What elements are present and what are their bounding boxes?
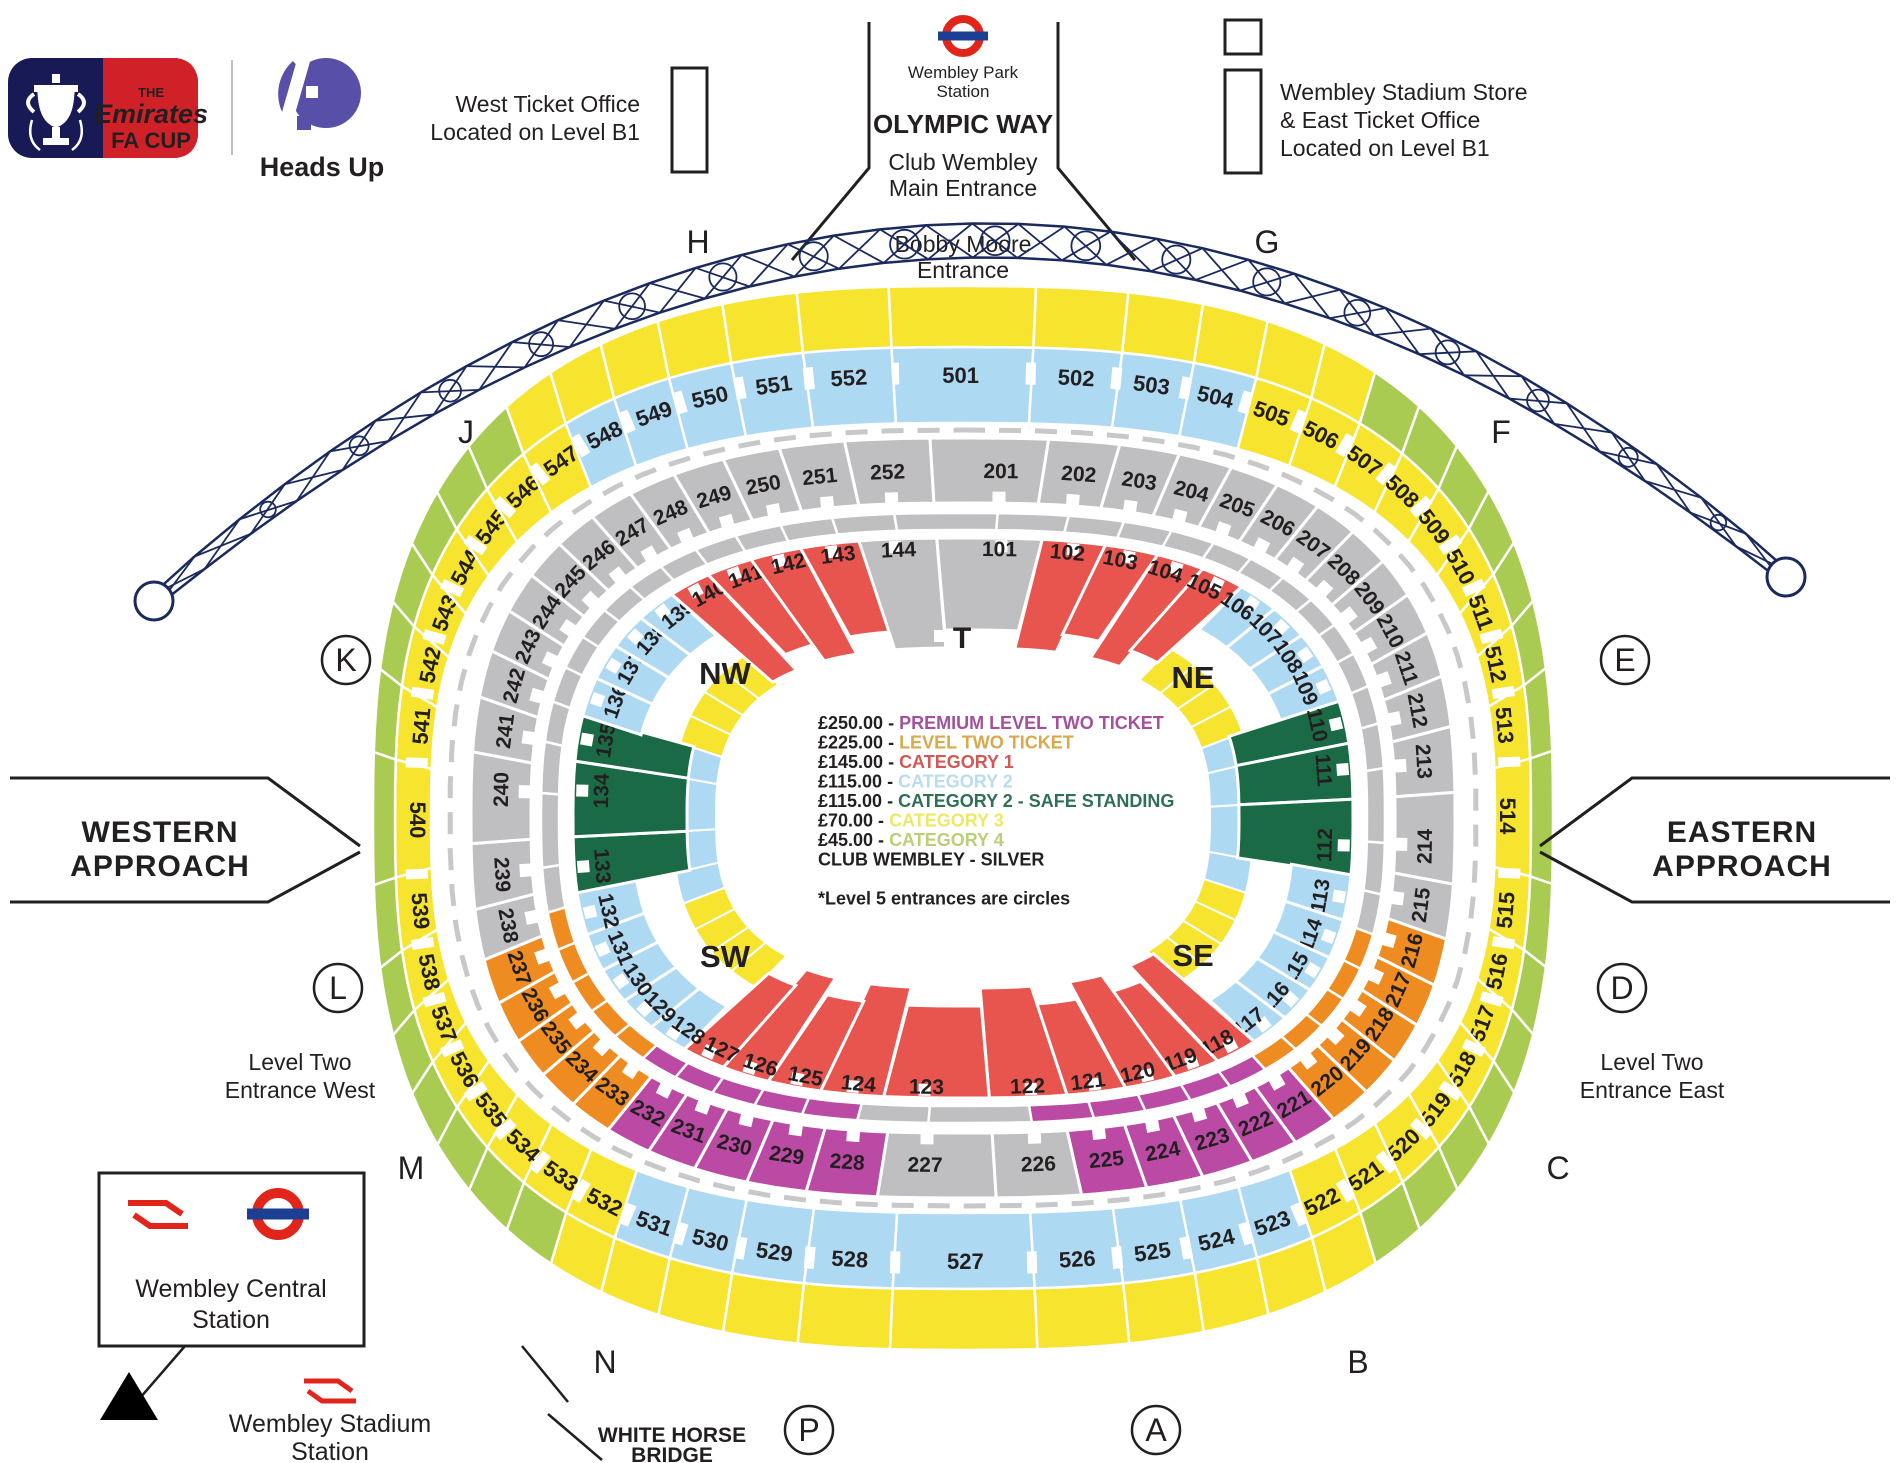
- compass-sw: SW: [700, 939, 751, 974]
- section-label-215: 215: [1408, 886, 1435, 924]
- section-label-213: 213: [1411, 743, 1436, 779]
- section-label-102: 102: [1049, 540, 1086, 566]
- gate-letter: G: [1255, 224, 1280, 260]
- eastern-approach-line1: EASTERN: [1667, 816, 1817, 849]
- section-label-228: 228: [829, 1150, 866, 1175]
- gate-H: H: [686, 224, 709, 260]
- section-label-124: 124: [840, 1071, 877, 1097]
- gate-letter: B: [1347, 1344, 1368, 1380]
- section-514: 514: [1494, 751, 1553, 884]
- section-label-133: 133: [589, 848, 614, 885]
- section-label-112: 112: [1313, 828, 1337, 862]
- eastern-approach: EASTERN APPROACH: [1540, 778, 1890, 902]
- section-540: 540: [373, 752, 432, 885]
- legend-row: £70.00 - CATEGORY 3: [818, 811, 1004, 831]
- national-rail-icon: [304, 1381, 356, 1401]
- section-552: 552: [797, 287, 896, 428]
- section-502: 502: [1026, 287, 1129, 428]
- stadium-station-line2: Station: [291, 1438, 369, 1463]
- section-label-239: 239: [489, 856, 514, 892]
- olympic-way-label: OLYMPIC WAY: [873, 109, 1053, 139]
- fa-cup-logo: THE Emirates FA CUP: [8, 58, 208, 158]
- gate-C: C: [1546, 1150, 1569, 1186]
- gate-letter: E: [1614, 642, 1635, 678]
- entrance-funnel-left-line: [792, 22, 869, 260]
- store-line1: Wembley Stadium Store: [1280, 79, 1528, 105]
- gate-letter: N: [593, 1344, 616, 1380]
- section-label-101: 101: [982, 538, 1018, 561]
- section-label-513: 513: [1490, 706, 1518, 745]
- section-label-121: 121: [1069, 1068, 1107, 1095]
- gate-letter: H: [686, 224, 709, 260]
- store-rect-icon: [1225, 70, 1261, 173]
- gate-letter: M: [398, 1150, 425, 1186]
- bobby-moore-line2: Entrance: [917, 257, 1009, 283]
- legend-row: £225.00 - LEVEL TWO TICKET: [818, 733, 1074, 753]
- gate-letter: K: [335, 642, 356, 678]
- section-501: 501: [889, 286, 1037, 424]
- gate-letter: L: [329, 970, 347, 1006]
- section-label-225: 225: [1088, 1147, 1126, 1174]
- arch-end-west-icon: [135, 582, 173, 620]
- wembley-central-station: Wembley Central Station: [99, 1173, 364, 1346]
- price-legend: £250.00 - PREMIUM LEVEL TWO TICKET£225.0…: [818, 713, 1174, 909]
- store-square-icon: [1225, 20, 1261, 54]
- gate-letter: P: [798, 1412, 819, 1448]
- west-ticket-line2: Located on Level B1: [430, 119, 640, 145]
- fa-cup-emirates: Emirates: [94, 99, 208, 129]
- eastern-approach-line2: APPROACH: [1652, 850, 1832, 883]
- section-label-514: 514: [1495, 798, 1520, 835]
- section-label-251: 251: [801, 464, 839, 491]
- western-approach-line2: APPROACH: [70, 850, 250, 883]
- section-label-214: 214: [1414, 828, 1438, 864]
- station-pointer-line: [140, 1346, 185, 1398]
- club-wembley-line1: Club Wembley: [888, 149, 1038, 175]
- section-label-552: 552: [830, 364, 868, 391]
- fa-cup-the: THE: [138, 85, 164, 100]
- west-ticket-office-icon: [672, 68, 707, 172]
- gate-letter: F: [1491, 414, 1511, 450]
- section-label-527: 527: [947, 1249, 984, 1274]
- bridge-line-2: [548, 1414, 602, 1460]
- gate-L: L: [314, 964, 362, 1012]
- compass-se: SE: [1172, 938, 1213, 973]
- section-label-551: 551: [754, 370, 794, 400]
- wembley-stadium-station: Wembley Stadium Station: [229, 1381, 431, 1463]
- gate-E: E: [1601, 636, 1649, 684]
- legend-row: £250.00 - PREMIUM LEVEL TWO TICKET: [818, 713, 1164, 733]
- central-station-line1: Wembley Central: [135, 1275, 326, 1303]
- compass-nw: NW: [699, 656, 751, 691]
- legend-note: *Level 5 entrances are circles: [818, 889, 1070, 909]
- entrance-funnel-right-line: [1058, 22, 1135, 260]
- gate-F: F: [1491, 414, 1511, 450]
- western-approach-line1: WESTERN: [82, 816, 239, 849]
- section-label-201: 201: [983, 460, 1019, 483]
- central-station-line2: Station: [192, 1306, 270, 1334]
- section-label-241: 241: [492, 712, 519, 750]
- legend-row: £45.00 - CATEGORY 4: [818, 830, 1004, 850]
- gate-J: J: [458, 414, 474, 450]
- section-527: 527: [890, 1213, 1038, 1351]
- section-label-525: 525: [1132, 1237, 1172, 1267]
- gate-K: K: [322, 636, 370, 684]
- legend-club-wembley: CLUB WEMBLEY - SILVER: [818, 850, 1044, 870]
- section-label-515: 515: [1492, 891, 1520, 930]
- gate-N: N: [593, 1344, 616, 1380]
- west-ticket-office: West Ticket Office Located on Level B1: [430, 68, 707, 172]
- underground-roundel-icon: [938, 19, 988, 53]
- gate-letter: J: [458, 414, 474, 450]
- gate-letter: D: [1610, 970, 1633, 1006]
- section-label-503: 503: [1132, 370, 1172, 400]
- bridge-line-1: [522, 1346, 568, 1402]
- section-528: 528: [798, 1208, 901, 1349]
- section-label-502: 502: [1057, 364, 1095, 391]
- section-label-134: 134: [590, 773, 614, 809]
- gate-letter: A: [1145, 1412, 1167, 1448]
- arch-end-east-icon: [1767, 558, 1805, 596]
- gate-M: M: [398, 1150, 425, 1186]
- store-line2: & East Ticket Office: [1280, 107, 1480, 133]
- tunnel-label: T: [953, 622, 971, 655]
- gate-A: A: [1132, 1406, 1180, 1454]
- heads-up-label: Heads Up: [260, 152, 385, 182]
- western-approach: WESTERN APPROACH: [10, 778, 360, 902]
- gate-D: D: [1598, 964, 1646, 1012]
- section-label-528: 528: [831, 1246, 869, 1273]
- entrance-west-line2: Entrance West: [225, 1077, 376, 1103]
- wembley-park-line2: Station: [937, 82, 990, 101]
- entrance-east-line2: Entrance East: [1580, 1077, 1725, 1103]
- compass-ne: NE: [1171, 660, 1214, 695]
- section-label-227: 227: [907, 1154, 942, 1177]
- section-label-541: 541: [407, 707, 435, 746]
- section-label-540: 540: [405, 802, 430, 839]
- section-label-252: 252: [870, 460, 906, 484]
- section-label-123: 123: [909, 1076, 944, 1099]
- white-horse-bridge: WHITE HORSE BRIDGE: [522, 1346, 746, 1463]
- store-line3: Located on Level B1: [1280, 135, 1490, 161]
- section-526: 526: [1030, 1208, 1129, 1349]
- legend-row: £145.00 - CATEGORY 1: [818, 752, 1014, 772]
- entrance-west-line1: Level Two: [248, 1049, 351, 1075]
- gate-letter: C: [1546, 1150, 1569, 1186]
- section-label-144: 144: [881, 538, 917, 562]
- section-label-526: 526: [1058, 1246, 1096, 1273]
- section-label-111: 111: [1311, 753, 1336, 788]
- section-label-240: 240: [490, 772, 514, 807]
- gate-G: G: [1255, 224, 1280, 260]
- map-triangle-icon: [100, 1372, 158, 1420]
- section-label-226: 226: [1021, 1152, 1057, 1176]
- bridge-label-line2: BRIDGE: [631, 1444, 713, 1463]
- section-label-122: 122: [1010, 1074, 1046, 1098]
- section-label-143: 143: [819, 542, 857, 569]
- gate-B: B: [1347, 1344, 1368, 1380]
- section-label-501: 501: [942, 363, 979, 388]
- club-wembley-line2: Main Entrance: [889, 175, 1037, 201]
- legend-row: £115.00 - CATEGORY 2 - SAFE STANDING: [818, 791, 1174, 811]
- wembley-seating-map: THE Emirates FA CUP Heads Up Wembley Par…: [0, 0, 1900, 1463]
- wembley-park-line1: Wembley Park: [908, 63, 1019, 82]
- section-label-202: 202: [1060, 462, 1097, 487]
- stadium-station-line1: Wembley Stadium: [229, 1410, 431, 1438]
- gate-P: P: [785, 1406, 833, 1454]
- west-ticket-line1: West Ticket Office: [456, 91, 640, 117]
- heads-up-logo: Heads Up: [260, 52, 385, 182]
- stadium-store: Wembley Stadium Store & East Ticket Offi…: [1225, 20, 1528, 173]
- section-label-539: 539: [406, 891, 434, 930]
- fa-cup-facup: FA CUP: [111, 128, 191, 153]
- legend-row: £115.00 - CATEGORY 2: [818, 772, 1013, 792]
- entrance-east-line1: Level Two: [1600, 1049, 1703, 1075]
- section-label-529: 529: [754, 1237, 794, 1267]
